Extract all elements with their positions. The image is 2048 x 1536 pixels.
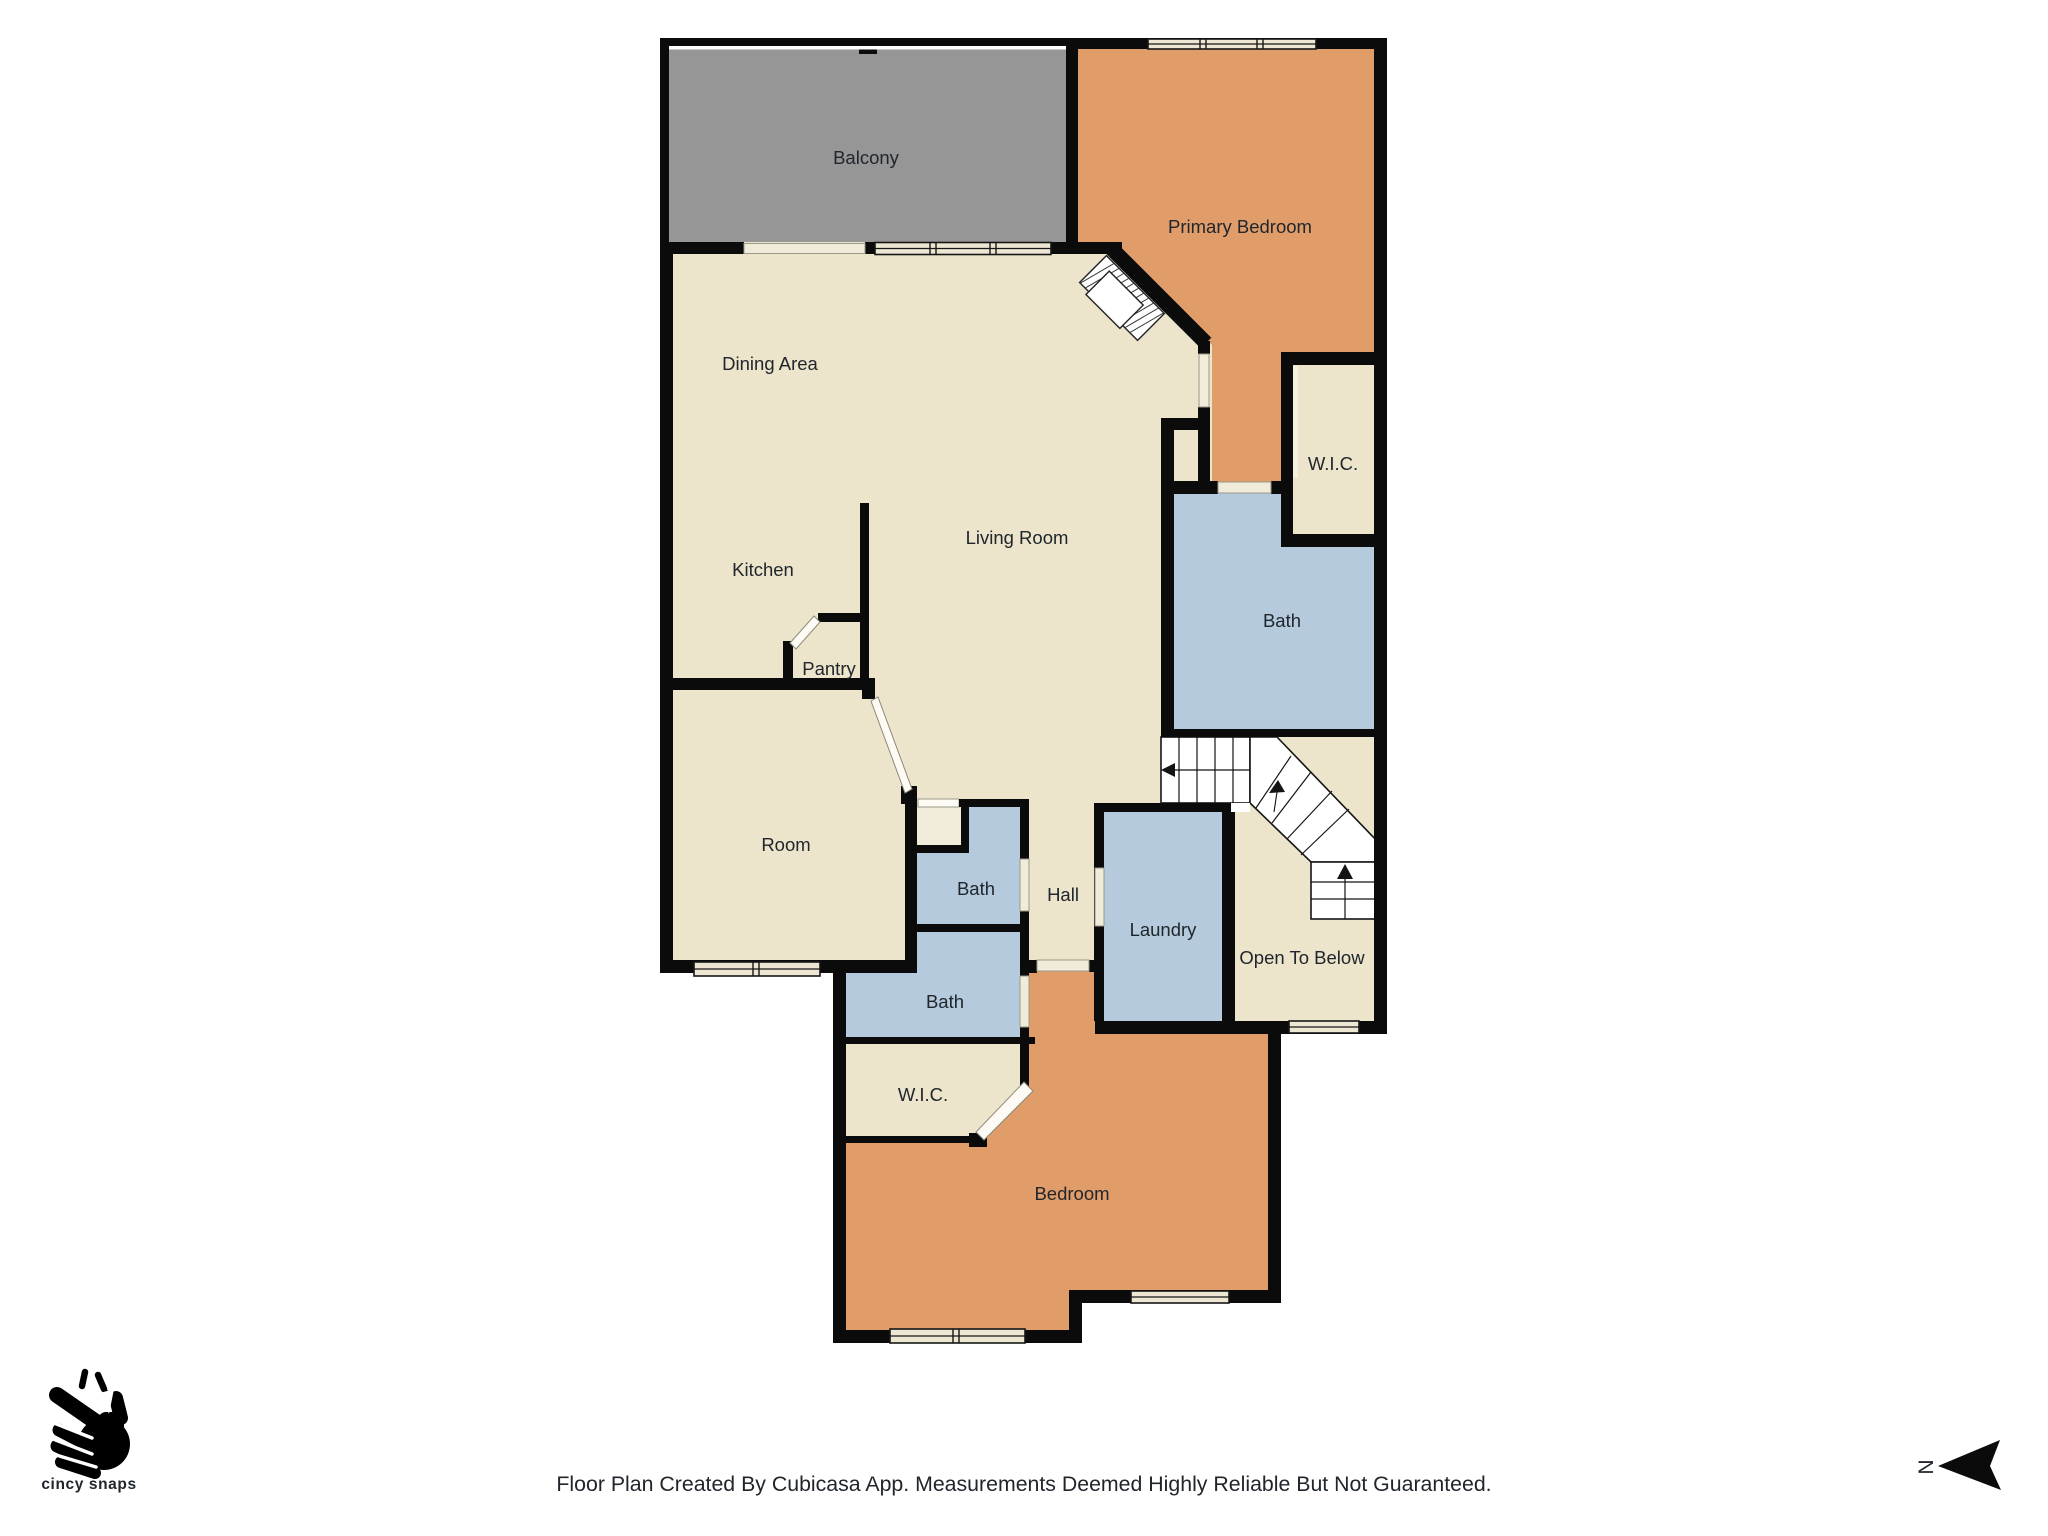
svg-text:W.I.C.: W.I.C. [898, 1084, 948, 1105]
svg-text:Bath: Bath [1263, 610, 1301, 631]
svg-text:Pantry: Pantry [802, 658, 856, 679]
svg-text:Bath: Bath [926, 991, 964, 1012]
svg-text:Bath: Bath [957, 878, 995, 899]
svg-text:Room: Room [761, 834, 810, 855]
svg-text:N: N [1915, 1459, 1938, 1474]
svg-text:Open To Below: Open To Below [1239, 947, 1365, 968]
svg-text:Laundry: Laundry [1130, 919, 1198, 940]
svg-text:Dining Area: Dining Area [722, 353, 818, 374]
svg-text:Hall: Hall [1047, 884, 1079, 905]
svg-text:W.I.C.: W.I.C. [1308, 453, 1358, 474]
svg-text:Bedroom: Bedroom [1034, 1183, 1109, 1204]
svg-text:Kitchen: Kitchen [732, 559, 794, 580]
svg-text:Floor Plan Created By Cubicasa: Floor Plan Created By Cubicasa App. Meas… [556, 1472, 1491, 1496]
svg-text:Living Room: Living Room [966, 527, 1069, 548]
svg-text:Primary Bedroom: Primary Bedroom [1168, 216, 1312, 237]
svg-text:Balcony: Balcony [833, 147, 900, 168]
svg-text:cincy snaps: cincy snaps [41, 1476, 136, 1493]
